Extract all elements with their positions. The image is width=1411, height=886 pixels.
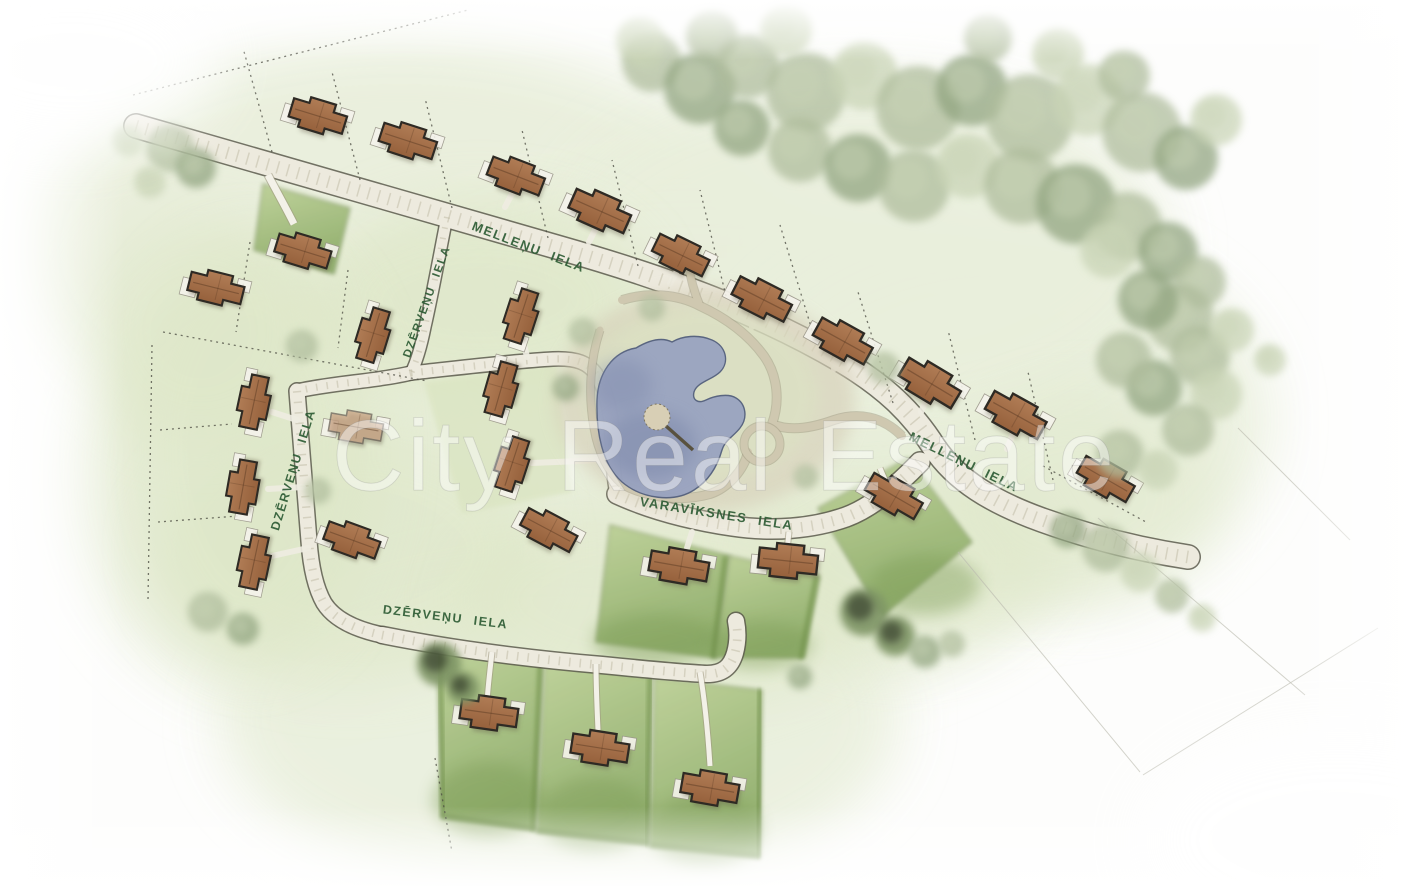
tree bbox=[1118, 270, 1178, 330]
tree bbox=[639, 295, 665, 321]
tree bbox=[188, 592, 228, 632]
tree-highlight bbox=[152, 130, 178, 156]
tree-highlight bbox=[913, 640, 931, 658]
tree-highlight bbox=[557, 378, 571, 392]
tree-highlight bbox=[573, 322, 588, 337]
tree-highlight bbox=[1088, 229, 1119, 260]
tree-highlight bbox=[1178, 334, 1211, 367]
tree-highlight bbox=[880, 621, 902, 643]
tree-highlight bbox=[1169, 411, 1198, 440]
tree-highlight bbox=[994, 158, 1036, 200]
tree bbox=[714, 100, 770, 156]
tree bbox=[1162, 404, 1214, 456]
tree-highlight bbox=[777, 126, 812, 161]
tree bbox=[1210, 308, 1254, 352]
tree bbox=[939, 631, 965, 657]
tree-highlight bbox=[138, 170, 156, 188]
tree-highlight bbox=[1258, 348, 1276, 366]
tree-highlight bbox=[309, 481, 323, 495]
tree bbox=[134, 166, 166, 198]
tree-highlight bbox=[1055, 517, 1075, 537]
tree bbox=[553, 375, 579, 401]
tree-highlight bbox=[722, 107, 753, 138]
tree bbox=[1080, 222, 1136, 278]
tree bbox=[227, 613, 259, 645]
tree-highlight bbox=[1143, 455, 1165, 477]
driveway bbox=[596, 664, 598, 730]
tree-highlight bbox=[945, 142, 980, 177]
tree-highlight bbox=[1105, 57, 1134, 86]
tree-highlight bbox=[1088, 530, 1114, 556]
tree bbox=[1155, 579, 1189, 613]
tree-highlight bbox=[943, 634, 957, 648]
tree-highlight bbox=[451, 676, 469, 694]
tree bbox=[909, 636, 941, 668]
watermark: City Real Estate bbox=[332, 400, 1117, 512]
tree-highlight bbox=[777, 62, 821, 106]
tree-highlight bbox=[1197, 375, 1226, 404]
tree bbox=[176, 148, 216, 188]
tree-highlight bbox=[888, 159, 928, 199]
tree bbox=[286, 330, 318, 362]
tree-highlight bbox=[887, 77, 933, 123]
tree-highlight bbox=[181, 153, 203, 175]
site-plan-page: MELLEŅU IELADZĒRVEŅU IELADZĒRVEŅU IELADZ… bbox=[0, 0, 1411, 886]
tree-highlight bbox=[998, 85, 1046, 133]
tree-highlight bbox=[1125, 557, 1147, 579]
tree-highlight bbox=[946, 63, 986, 103]
tree-highlight bbox=[290, 334, 308, 352]
tree-highlight bbox=[193, 597, 215, 619]
tree-highlight bbox=[1126, 278, 1159, 311]
tree bbox=[1120, 552, 1160, 592]
tree bbox=[868, 352, 900, 384]
tree-highlight bbox=[1160, 583, 1179, 602]
tree bbox=[768, 118, 832, 182]
tree-highlight bbox=[423, 648, 447, 672]
site-plan-map: MELLEŅU IELADZĒRVEŅU IELADZĒRVEŅU IELADZ… bbox=[0, 0, 1411, 886]
tree-highlight bbox=[1047, 174, 1091, 218]
tree bbox=[1188, 604, 1216, 632]
tree bbox=[1050, 512, 1086, 548]
tree bbox=[788, 665, 812, 689]
tree bbox=[305, 478, 331, 504]
tree bbox=[1190, 94, 1242, 146]
tree-highlight bbox=[872, 356, 890, 374]
tree-highlight bbox=[231, 617, 249, 635]
tree-highlight bbox=[846, 594, 872, 620]
tree-highlight bbox=[1062, 73, 1102, 113]
tree-highlight bbox=[1163, 134, 1198, 169]
tree-highlight bbox=[1192, 608, 1207, 623]
tree-highlight bbox=[1216, 314, 1240, 338]
tree-highlight bbox=[674, 61, 714, 101]
tree bbox=[875, 616, 915, 656]
tree bbox=[447, 672, 479, 704]
fade-corner bbox=[1140, 730, 1411, 886]
tree-highlight bbox=[1197, 101, 1226, 130]
tree-highlight bbox=[1104, 339, 1135, 370]
tree bbox=[1254, 344, 1286, 376]
tree bbox=[569, 318, 597, 346]
tree-highlight bbox=[1113, 102, 1157, 146]
tree bbox=[1138, 450, 1178, 490]
tree-highlight bbox=[1146, 230, 1179, 263]
tree-highlight bbox=[643, 298, 657, 312]
tree-highlight bbox=[833, 143, 870, 180]
tree-highlight bbox=[791, 668, 804, 681]
tree bbox=[1096, 332, 1152, 388]
